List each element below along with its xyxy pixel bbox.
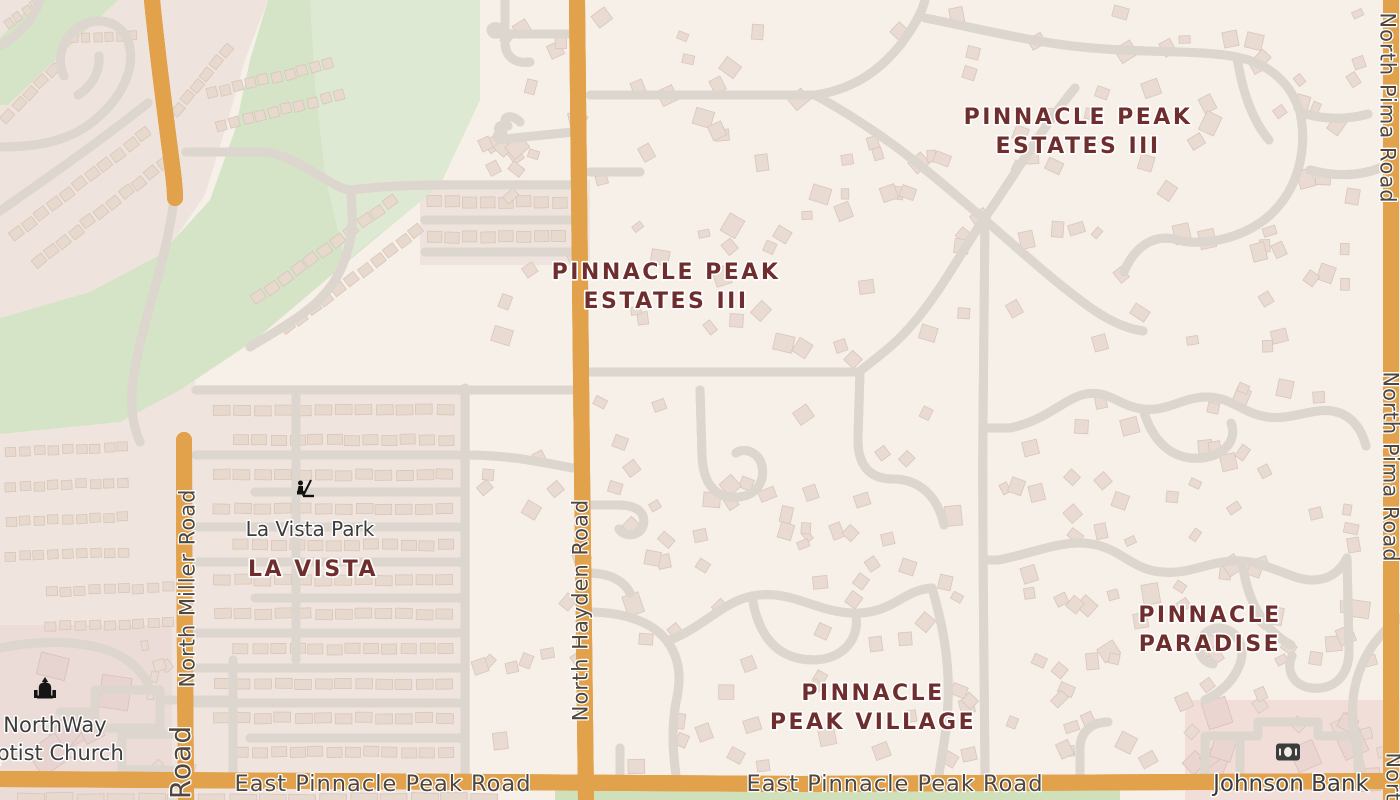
building [90,513,101,523]
building [316,610,333,620]
building [1276,379,1294,399]
building [382,436,397,446]
building [82,33,90,42]
building [315,504,332,514]
building [272,746,287,756]
building [1022,439,1040,457]
building [1313,391,1325,403]
building [76,479,87,488]
building [436,609,453,619]
place-label: PEAK VILLAGE [770,710,976,735]
building [5,552,16,561]
building [639,633,654,645]
building [118,548,129,557]
building [117,478,128,488]
building [132,619,144,629]
building [499,231,513,242]
building [505,661,519,674]
road-label: North Pima Road [1376,12,1400,203]
building [307,434,322,444]
building [104,584,115,593]
building [1141,583,1161,606]
building [267,106,279,118]
building [400,434,415,444]
building [812,575,828,589]
building [275,678,292,688]
building [235,503,252,513]
building [148,583,159,592]
building [48,446,59,455]
building [415,504,432,514]
building [841,154,854,166]
building [1085,653,1099,671]
building [462,197,476,208]
road-label: East Pinnacle Peak Road [235,771,532,797]
building [416,712,433,722]
place-label: PINNACLE [1138,603,1281,628]
building [416,679,433,689]
building [401,540,416,550]
building [46,792,73,800]
building [89,444,100,453]
building [419,748,434,758]
building [1186,335,1199,345]
building [551,230,566,241]
building [314,713,331,723]
building [275,405,292,415]
building [90,480,101,489]
building [1342,504,1352,516]
building [395,714,412,724]
building [481,232,496,243]
building [462,231,477,242]
building [90,620,101,629]
building [219,84,231,96]
building [436,679,453,689]
building [284,68,296,80]
building [213,469,230,479]
building [682,54,695,65]
building [344,436,359,446]
building [516,231,531,242]
building [62,444,73,454]
building [540,648,554,660]
building [163,582,174,591]
building [215,120,227,132]
building [253,748,268,758]
place-label: ESTATES III [995,134,1160,159]
building [251,435,266,445]
building [326,541,341,551]
building [206,86,218,98]
building [33,550,44,560]
building [254,713,271,723]
building [5,447,16,457]
building [141,640,149,650]
building [75,621,86,630]
building [47,515,58,524]
building [6,517,17,526]
building [376,679,393,689]
building [437,405,454,415]
building [162,618,173,627]
building [271,71,283,83]
building [103,479,114,488]
building [34,482,45,491]
building [271,435,286,445]
building [355,404,372,414]
building [395,679,412,689]
building [20,481,31,491]
building [961,747,977,763]
building [958,308,970,319]
building [233,644,248,654]
road-label: North Pima Road [1382,752,1400,800]
building [375,470,392,480]
building [257,73,269,85]
building [104,549,115,558]
building [308,540,323,550]
building [271,540,286,550]
building [419,541,434,551]
building [751,24,763,40]
building [315,679,332,689]
building [1179,36,1190,44]
building [419,435,434,445]
building [242,112,254,124]
building [295,679,312,689]
building [271,643,286,653]
building [45,622,56,631]
building [34,445,45,455]
building [5,483,16,492]
road-label: North Miller Road [175,489,199,688]
building [729,314,743,328]
building [436,469,453,479]
building [333,89,345,101]
building [252,539,267,549]
building [327,747,342,757]
building [1341,278,1350,290]
building [335,404,352,414]
building [481,197,495,208]
building [90,548,101,558]
building [356,679,373,689]
building [1108,653,1120,665]
building [363,434,378,445]
building [801,523,811,535]
road-label: Road [164,725,197,799]
building [355,712,372,722]
building [327,645,342,655]
building [937,574,953,591]
place-label: LA VISTA [248,557,378,582]
building [356,469,373,479]
building [1166,491,1179,503]
building [255,470,272,480]
building [274,712,291,722]
building [107,794,134,800]
building [228,116,240,128]
bank-icon [1276,744,1300,761]
building [966,46,981,61]
building [1309,507,1323,521]
building [274,503,291,514]
building [307,746,322,756]
building [534,231,549,242]
building [1347,537,1361,553]
place-label: PINNACLE PEAK [964,105,1193,130]
building [274,470,291,480]
building [492,732,508,750]
building [148,618,159,627]
building [436,503,453,514]
building [381,644,396,654]
building [395,608,412,618]
building [1207,402,1220,414]
building [234,608,251,619]
building [439,436,454,446]
building [293,100,305,112]
building [20,551,31,560]
building [841,189,849,199]
poi-label: La Vista Park [246,517,375,541]
building [427,195,442,206]
building [76,514,87,524]
building [401,644,416,654]
building [415,404,432,414]
building [290,747,305,757]
building [60,621,71,630]
building [46,586,57,595]
building [254,504,271,514]
building [802,211,813,220]
building [60,587,72,597]
building [77,794,104,800]
building [296,64,308,76]
building [719,685,734,700]
building [253,644,268,654]
building [213,504,230,514]
building [1222,30,1239,48]
building [698,229,710,238]
building [296,713,313,723]
poi-label: Johnson Bank [1211,771,1369,797]
building [1340,243,1349,254]
building [438,643,453,653]
building [417,470,434,480]
building [396,405,413,415]
building [516,196,531,207]
building [880,532,895,546]
building [62,515,73,524]
building [416,610,433,620]
building [553,197,568,208]
building [214,713,231,723]
building [364,643,379,653]
building [105,32,114,41]
building [345,747,360,757]
building [315,470,332,480]
building [375,609,392,619]
building [213,405,230,415]
building [245,77,257,89]
building [755,154,769,172]
building [198,794,225,800]
building [355,608,372,618]
building [396,575,413,585]
building [280,102,292,114]
poi-label: ptist Church [0,741,124,765]
building [232,80,244,92]
road-label: North Pima Road [1379,371,1400,562]
building [364,746,379,756]
building [1023,587,1035,599]
building [438,539,453,549]
building [439,748,454,758]
building [335,504,352,514]
building [61,480,72,490]
place-label: PINNACLE [801,681,944,706]
building [104,621,115,630]
building [320,92,332,104]
building [345,643,360,653]
building [344,541,359,551]
building [376,714,393,724]
building [427,231,442,242]
building [445,196,460,207]
building [869,636,883,652]
poi-label: NorthWay [3,713,106,737]
building [94,33,102,42]
building [445,232,460,243]
map-svg: PINNACLE PEAKESTATES IIIPINNACLE PEAKEST… [0,0,1400,800]
building [254,110,266,122]
building [255,609,272,619]
building [898,632,912,646]
building [382,539,397,549]
place-label: PARADISE [1139,632,1281,657]
building [395,504,412,514]
building [335,471,352,481]
building [534,197,549,208]
building [254,406,271,416]
building [119,620,131,630]
building [1051,221,1064,238]
building [47,550,58,560]
place-label: PINNACLE PEAK [552,260,781,285]
building [322,57,334,69]
building [420,643,435,653]
building [1262,340,1272,352]
building [213,575,230,585]
building [334,679,351,689]
building [233,435,248,445]
building [693,528,708,542]
building [104,513,115,522]
building [214,608,231,619]
building [233,470,250,480]
building [139,793,166,800]
building [117,512,128,522]
building [132,584,144,594]
building [89,584,100,593]
map-viewport[interactable]: PINNACLE PEAKESTATES IIIPINNACLE PEAKEST… [0,0,1400,800]
building [275,608,292,618]
building [308,644,323,654]
building [19,447,30,456]
building [255,679,272,689]
building [309,61,321,73]
building [376,405,393,415]
building [436,713,453,724]
building [34,516,45,525]
building [335,714,352,724]
building [104,443,115,453]
building [307,97,319,109]
building [644,550,661,567]
building [397,470,414,480]
building [117,442,128,451]
building [234,405,251,415]
road-label: East Pinnacle Peak Road [747,771,1044,797]
building [76,548,87,558]
place-label: ESTATES III [583,289,748,314]
building [382,747,397,757]
building [17,793,44,800]
road-label: North Hayden Road [568,499,592,721]
building [416,575,433,585]
building [402,748,417,758]
building [47,480,58,490]
building [315,405,332,415]
building [1309,651,1323,665]
building [19,516,30,526]
building [356,503,373,513]
building [482,469,494,481]
building [77,444,88,454]
building [74,586,85,595]
building [436,575,453,585]
building [628,759,645,774]
building [62,549,73,559]
building [327,434,342,444]
building [375,504,392,514]
building [118,583,130,593]
building [1345,188,1360,205]
building [858,279,874,294]
building [1074,419,1088,433]
building [335,609,352,619]
